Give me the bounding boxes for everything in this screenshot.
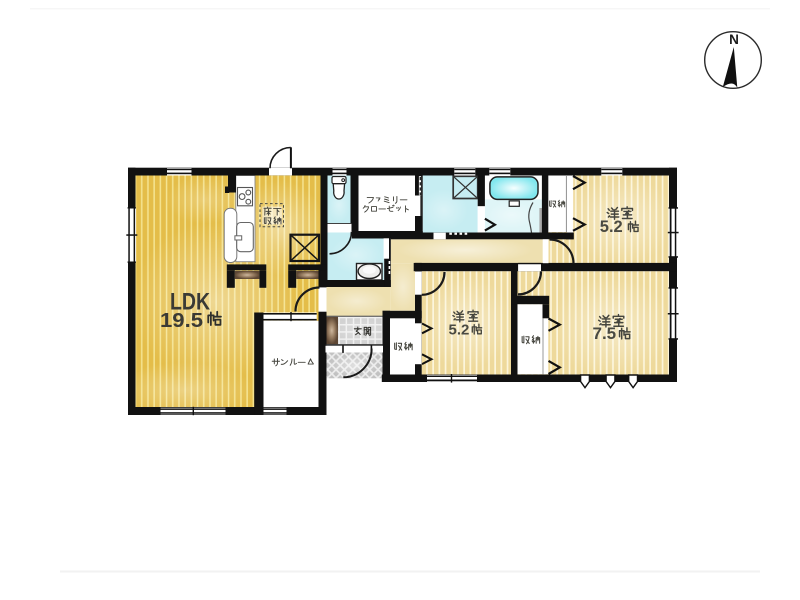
svg-text:5.2: 5.2 [449,322,470,339]
svg-text:7.5: 7.5 [593,324,617,343]
svg-text:19.5: 19.5 [160,309,203,332]
svg-text:N: N [729,32,739,47]
svg-text:5.2: 5.2 [600,218,623,236]
